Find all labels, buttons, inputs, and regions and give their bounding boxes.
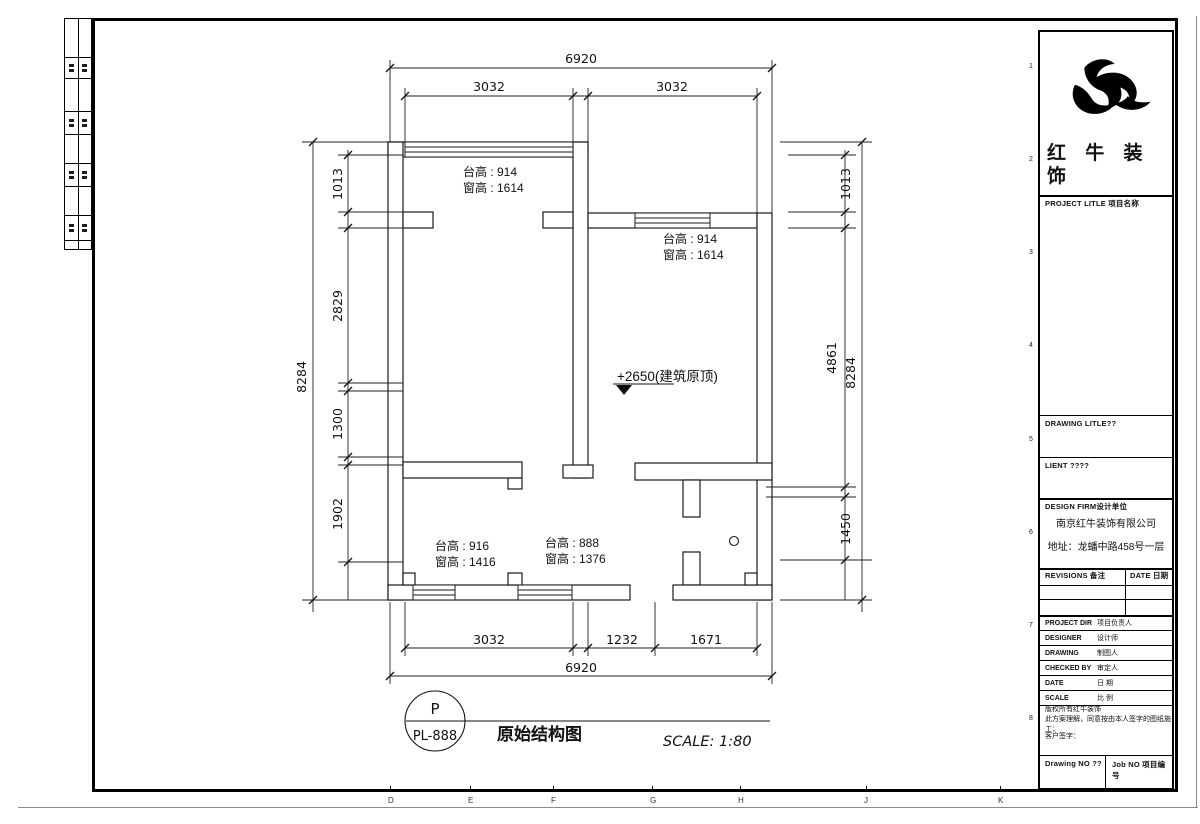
company-name-line2: 饰 — [1040, 165, 1172, 188]
dim-left-3: 1300 — [330, 408, 345, 440]
dim-right-1: 1013 — [838, 168, 853, 200]
row-drawing: DRAWING 制图人 — [1040, 646, 1172, 661]
dim-top-left: 3032 — [473, 79, 505, 94]
divider — [1040, 195, 1172, 197]
design-firm-address: 地址：龙蟠中路458号一层 — [1040, 538, 1172, 553]
job-no-label: Job NO 项目编号 — [1107, 759, 1172, 781]
dim-top-overall: 6920 — [565, 51, 597, 66]
wall-left — [388, 142, 403, 600]
row-label-en: DATE — [1040, 680, 1097, 687]
window-top — [405, 142, 573, 157]
window-right-room — [635, 213, 710, 228]
annotation-sill-height: 台高 : 914 — [463, 164, 517, 179]
wall-door-stub-left — [403, 212, 433, 228]
wall-door-stub-right — [543, 212, 573, 228]
wall-center-foot — [563, 465, 593, 478]
floor-plan: 6920 3032 3032 8284 1013 2829 1300 1902 … — [0, 0, 1035, 824]
annotation-sill-height: 台高 : 888 — [545, 535, 599, 550]
row-label-cn: 制图人 — [1097, 648, 1118, 658]
annotation-sill-height: 台高 : 916 — [435, 538, 489, 553]
window-bottom-2 — [518, 585, 572, 600]
revisions-date-label: DATE 日期 — [1125, 570, 1168, 581]
row-label-en: DESIGNER — [1040, 635, 1097, 642]
annotation-window-height: 窗高 : 1614 — [663, 247, 724, 262]
window-bottom-1 — [413, 585, 455, 600]
customer-sign-label: 客户签字： — [1040, 732, 1172, 742]
dim-left-1: 1013 — [330, 168, 345, 200]
revisions-label: REVISIONS 备注 — [1040, 570, 1125, 581]
dim-bottom-2: 1232 — [606, 632, 638, 647]
copyright-line1: 版权所有红牛装饰 — [1040, 705, 1172, 715]
wall-hall-notch — [508, 478, 522, 489]
wall-hall — [403, 462, 522, 478]
divider — [1040, 599, 1172, 600]
dim-right-2: 4861 — [824, 342, 839, 374]
dim-left-4: 1902 — [330, 498, 345, 530]
row-label-cn: 设计师 — [1097, 633, 1118, 643]
dim-left-2: 2829 — [330, 290, 345, 322]
scale-text: SCALE: 1:80 — [663, 734, 752, 750]
row-label-en: CHECKED BY — [1040, 665, 1097, 672]
dim-left-overall: 8284 — [294, 361, 309, 393]
signature-rows: PROJECT DIR 项目负责人 DESIGNER 设计师 DRAWING 制… — [1040, 616, 1172, 706]
revisions-header: REVISIONS 备注 DATE 日期 — [1040, 570, 1172, 581]
annotation-sill-height: 台高 : 914 — [663, 231, 717, 246]
drawing-sheet: D E F G H J K 1 2 3 4 5 6 7 8 — [0, 0, 1200, 824]
row-scale: SCALE 比 例 — [1040, 691, 1172, 706]
dim-bottom-1: 3032 — [473, 632, 505, 647]
row-designer: DESIGNER 设计师 — [1040, 631, 1172, 646]
bubble-letter: P — [430, 700, 439, 718]
elevation-marker: +2650(建筑原顶) — [613, 369, 718, 395]
paper-edge-right — [1196, 16, 1197, 807]
dim-right-3: 1450 — [838, 513, 853, 545]
project-title-label: PROJECT LITLE 项目名称 — [1040, 198, 1172, 209]
dim-bottom-overall: 6920 — [565, 660, 597, 675]
bubble-code: PL-888 — [413, 729, 457, 744]
divider — [1040, 585, 1172, 586]
wall-bath-bottom — [673, 585, 772, 600]
annotation-window-height: 窗高 : 1416 — [435, 554, 496, 569]
divider — [1040, 755, 1172, 756]
drawing-title-label: DRAWING LITLE?? — [1040, 419, 1172, 428]
dim-right-overall: 8284 — [843, 357, 858, 389]
row-date: DATE 日 期 — [1040, 676, 1172, 691]
drawing-footer: P PL-888 原始结构图 SCALE: 1:80 — [405, 691, 770, 751]
wall-bath-top — [635, 463, 772, 480]
design-firm-label: DESIGN FIRM设计单位 — [1040, 501, 1172, 512]
row-checked-by: CHECKED BY 审定人 — [1040, 661, 1172, 676]
elevation-triangle-icon — [616, 385, 632, 395]
wall-bath-stub-upper — [683, 480, 700, 517]
client-label: LIENT ???? — [1040, 461, 1172, 470]
row-label-cn: 项目负责人 — [1097, 618, 1132, 628]
dim-top-right: 3032 — [656, 79, 688, 94]
annotation-window-height: 窗高 : 1614 — [463, 180, 524, 195]
row-label-en: PROJECT DIR — [1040, 620, 1097, 627]
wall-center — [573, 142, 588, 478]
divider — [1125, 568, 1126, 615]
row-label-en: SCALE — [1040, 695, 1097, 702]
wall-bath-corner — [745, 573, 757, 585]
drawing-title: 原始结构图 — [497, 724, 582, 744]
wall-right — [757, 213, 772, 600]
floor-drain-icon — [730, 537, 739, 546]
wall-pier-1 — [403, 573, 415, 585]
dim-bottom-3: 1671 — [690, 632, 722, 647]
row-project-dir: PROJECT DIR 项目负责人 — [1040, 616, 1172, 631]
company-name-line1: 红 牛 装 — [1040, 142, 1172, 165]
row-label-cn: 审定人 — [1097, 663, 1118, 673]
row-label-cn: 比 例 — [1097, 693, 1113, 703]
design-firm-name: 南京红牛装饰有限公司 — [1040, 515, 1172, 530]
divider — [1040, 498, 1172, 500]
row-label-cn: 日 期 — [1097, 678, 1113, 688]
wall-bath-stub-lower — [683, 552, 700, 585]
annotation-window-height: 窗高 : 1376 — [545, 551, 606, 566]
title-block: 红 牛 装 饰 PROJECT LITLE 项目名称 DRAWING LITLE… — [1038, 30, 1174, 790]
row-label-en: DRAWING — [1040, 650, 1097, 657]
elevation-text: +2650(建筑原顶) — [617, 369, 718, 384]
bull-logo-icon — [1056, 54, 1160, 140]
wall-pier-2 — [508, 573, 522, 585]
divider — [1040, 457, 1172, 458]
divider — [1040, 415, 1172, 416]
